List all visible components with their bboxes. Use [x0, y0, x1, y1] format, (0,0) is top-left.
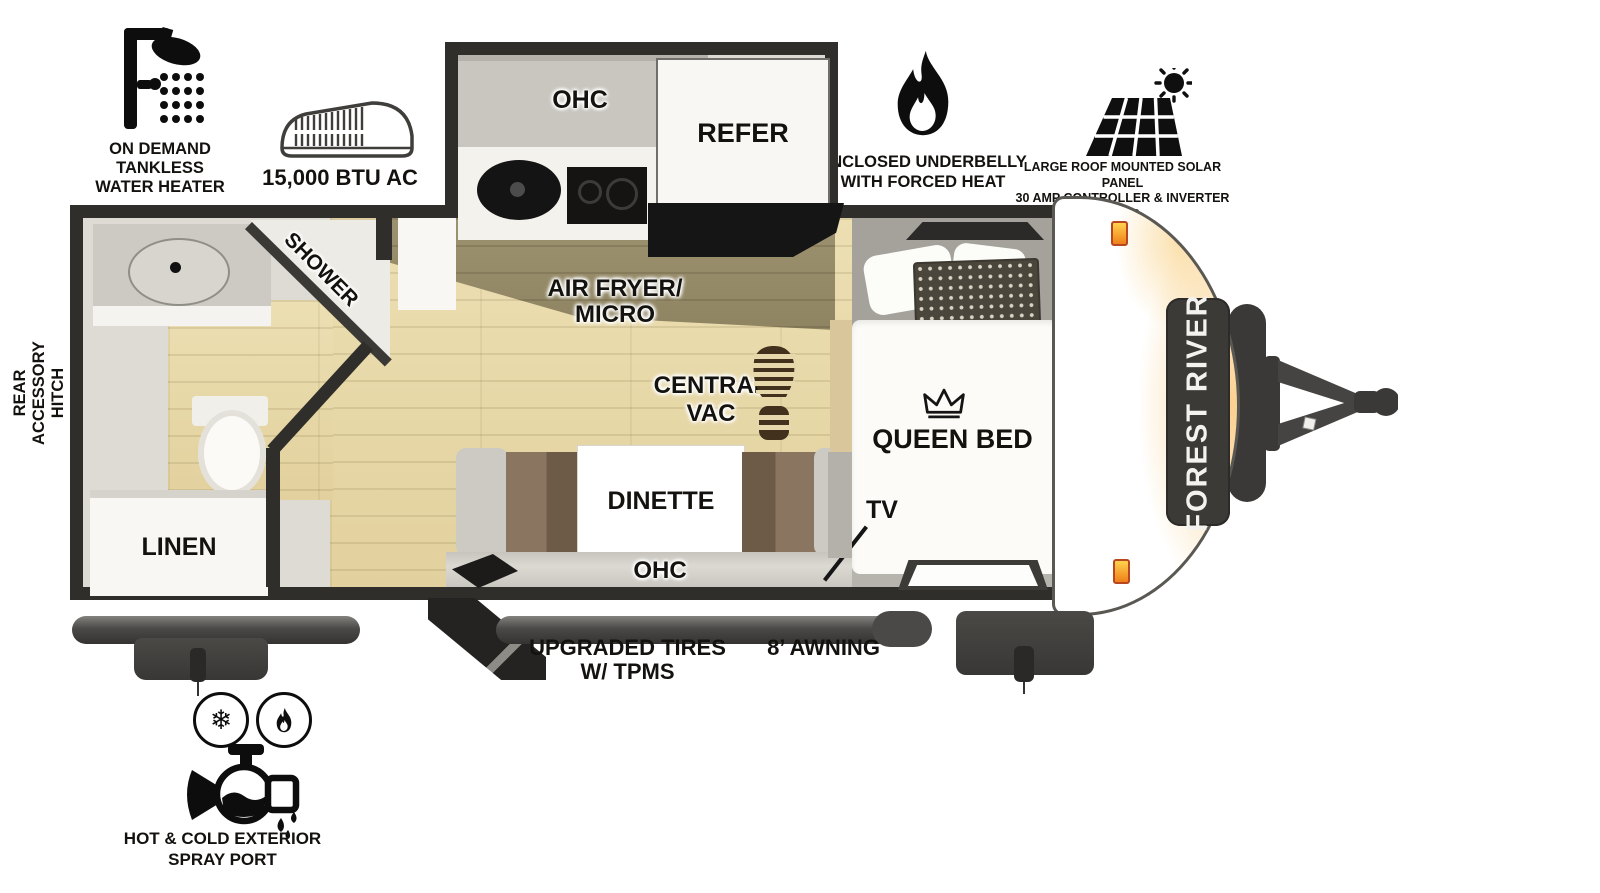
refer-label: REFER — [697, 118, 789, 148]
ac-label: 15,000 BTU AC — [225, 166, 455, 191]
queen-bed-label: QUEEN BED — [845, 424, 1060, 454]
bath-lower-wall — [266, 448, 280, 587]
rear-stabilizer-knob — [190, 648, 206, 682]
awning-label: 8’ AWNING — [726, 636, 921, 661]
floorplan-diagram: ON DEMAND TANKLESS WATER HEATER 15,000 B… — [0, 0, 1600, 893]
linen-cabinet: LINEN — [90, 490, 268, 596]
shower-head-icon — [112, 22, 212, 136]
dinette-seat-right — [742, 452, 816, 554]
cold-badge: ❄ — [193, 692, 249, 748]
hot-badge — [256, 692, 312, 748]
crown-icon — [920, 386, 968, 420]
bath-wall-stub — [376, 218, 392, 260]
dinette-armrest-left — [456, 448, 508, 556]
bed-wardrobe — [830, 320, 852, 452]
sink-drain — [510, 182, 525, 197]
solar-panel-icon — [1072, 68, 1192, 164]
brand-badge: FOREST RIVER — [1166, 298, 1230, 526]
burner-small — [578, 180, 602, 204]
hot-flame-icon — [271, 706, 297, 734]
boot-print-icon — [742, 344, 806, 442]
bed-side-cabinet — [828, 452, 852, 558]
linen-label: LINEN — [142, 533, 217, 561]
vanity-faucet — [170, 262, 181, 273]
rear-stabilizer-crank — [197, 682, 199, 696]
roof-vent — [906, 222, 1044, 240]
vanity-sink — [128, 238, 230, 306]
brand-logo-text: FOREST RIVER — [1182, 293, 1215, 531]
wheel-fender-knob — [1014, 646, 1034, 682]
tv-label: TV — [852, 496, 912, 524]
spray-port-faucet-icon — [178, 744, 310, 840]
under-bed-hatch-inner — [908, 565, 1038, 586]
air-fryer-label: AIR FRYER/ MICRO — [500, 276, 730, 328]
tires-label: UPGRADED TIRES W/ TPMS — [505, 636, 750, 684]
galley-ohc-label: OHC — [500, 86, 660, 114]
spray-port-label: HOT & COLD EXTERIOR SPRAY PORT — [100, 828, 345, 870]
toilet-bowl — [198, 410, 266, 496]
pantry-cabinet — [398, 218, 456, 310]
burner-large — [606, 178, 638, 210]
dinette-table: DINETTE — [578, 446, 744, 556]
refrigerator: REFER — [656, 58, 830, 209]
marker-light-bottom — [1113, 559, 1130, 584]
hitch-a-frame — [1228, 296, 1398, 511]
dinette-ohc-label: OHC — [560, 558, 760, 585]
rear-hitch-label: REAR ACCESSORY HITCH — [11, 293, 73, 493]
vanity-edge — [93, 306, 271, 326]
flame-icon — [878, 38, 968, 148]
snowflake-icon: ❄ — [210, 705, 233, 736]
ac-unit-icon — [272, 96, 422, 166]
wheel-fender-crank — [1023, 682, 1025, 694]
marker-light-top — [1111, 221, 1128, 246]
dinette-seat-left — [506, 452, 580, 554]
dinette-label: DINETTE — [608, 487, 715, 515]
